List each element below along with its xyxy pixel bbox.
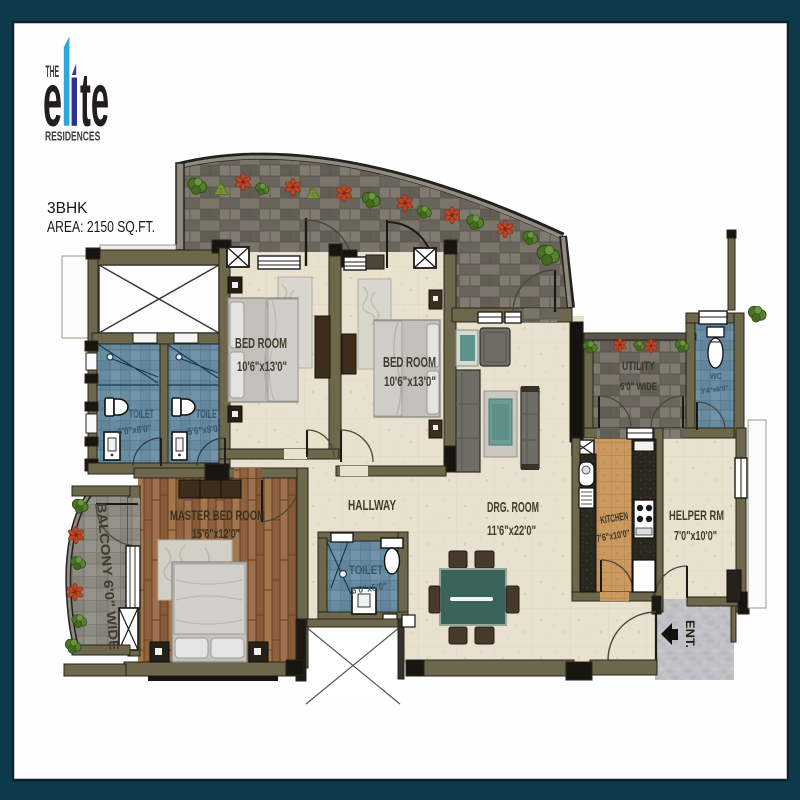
svg-text:UTILITY: UTILITY	[622, 359, 655, 373]
svg-text:TOILET: TOILET	[129, 407, 154, 421]
svg-text:BED ROOM: BED ROOM	[235, 335, 287, 352]
svg-text:TOILET: TOILET	[196, 407, 221, 421]
svg-text:11'6"x22'0": 11'6"x22'0"	[487, 522, 536, 538]
svg-text:10'6"x13'0": 10'6"x13'0"	[237, 358, 287, 374]
svg-text:MASTER BED ROOM: MASTER BED ROOM	[170, 507, 265, 523]
svg-text:3BHK: 3BHK	[47, 200, 88, 217]
svg-text:DRG. ROOM: DRG. ROOM	[487, 499, 539, 516]
svg-text:WC: WC	[710, 372, 722, 381]
svg-text:10'6"x13'0": 10'6"x13'0"	[384, 373, 436, 389]
svg-text:RESIDENCES: RESIDENCES	[45, 130, 100, 144]
svg-text:TOILET: TOILET	[349, 563, 384, 577]
svg-text:15'6"x12'0": 15'6"x12'0"	[192, 526, 240, 541]
svg-text:HALLWAY: HALLWAY	[348, 497, 396, 514]
svg-text:7'0"x10'0": 7'0"x10'0"	[674, 528, 717, 543]
svg-text:6'0" WIDE: 6'0" WIDE	[620, 381, 657, 393]
svg-text:AREA: 2150 SQ.FT.: AREA: 2150 SQ.FT.	[47, 219, 155, 236]
svg-text:HELPER RM: HELPER RM	[669, 507, 724, 523]
svg-text:BED ROOM: BED ROOM	[383, 354, 436, 371]
svg-text:ENT.: ENT.	[683, 620, 697, 648]
